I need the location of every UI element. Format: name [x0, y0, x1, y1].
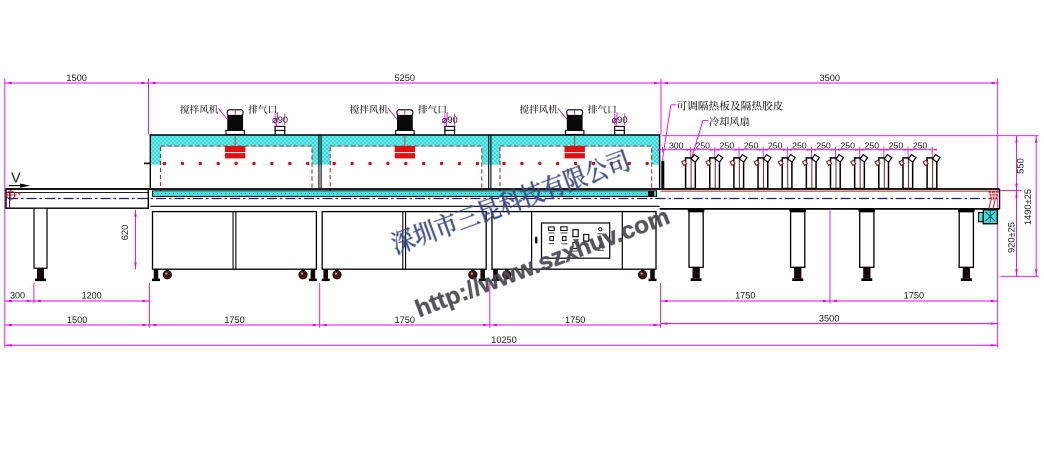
svg-text:250: 250 — [816, 140, 831, 150]
svg-text:250: 250 — [792, 140, 807, 150]
svg-text:1500: 1500 — [67, 315, 87, 325]
svg-text:920±25: 920±25 — [1007, 222, 1017, 253]
svg-text:250: 250 — [744, 140, 759, 150]
svg-text:1500: 1500 — [66, 73, 86, 83]
svg-text:1200: 1200 — [82, 291, 102, 301]
svg-text:1490±25: 1490±25 — [1023, 189, 1033, 225]
svg-text:5250: 5250 — [395, 73, 415, 83]
svg-text:550: 550 — [1015, 158, 1025, 174]
svg-text:10250: 10250 — [491, 335, 517, 345]
svg-text:1750: 1750 — [395, 315, 415, 325]
svg-text:3500: 3500 — [819, 314, 839, 324]
svg-text:250: 250 — [913, 140, 928, 150]
svg-text:ø90: ø90 — [442, 114, 458, 125]
svg-text:V: V — [11, 171, 21, 187]
svg-text:300: 300 — [669, 140, 684, 150]
svg-text:3500: 3500 — [820, 73, 840, 83]
svg-text:250: 250 — [720, 140, 735, 150]
svg-text:1750: 1750 — [565, 315, 585, 325]
svg-text:1750: 1750 — [735, 291, 755, 301]
svg-text:250: 250 — [696, 140, 711, 150]
svg-text:250: 250 — [865, 140, 880, 150]
svg-text:250: 250 — [768, 140, 783, 150]
svg-text:1750: 1750 — [904, 291, 924, 301]
svg-text:ø90: ø90 — [272, 114, 288, 125]
svg-text:250: 250 — [840, 140, 855, 150]
svg-text:ø90: ø90 — [611, 114, 627, 125]
svg-text:250: 250 — [889, 140, 904, 150]
svg-text:1750: 1750 — [224, 315, 244, 325]
svg-text:620: 620 — [120, 225, 130, 241]
svg-text:300: 300 — [10, 291, 25, 301]
